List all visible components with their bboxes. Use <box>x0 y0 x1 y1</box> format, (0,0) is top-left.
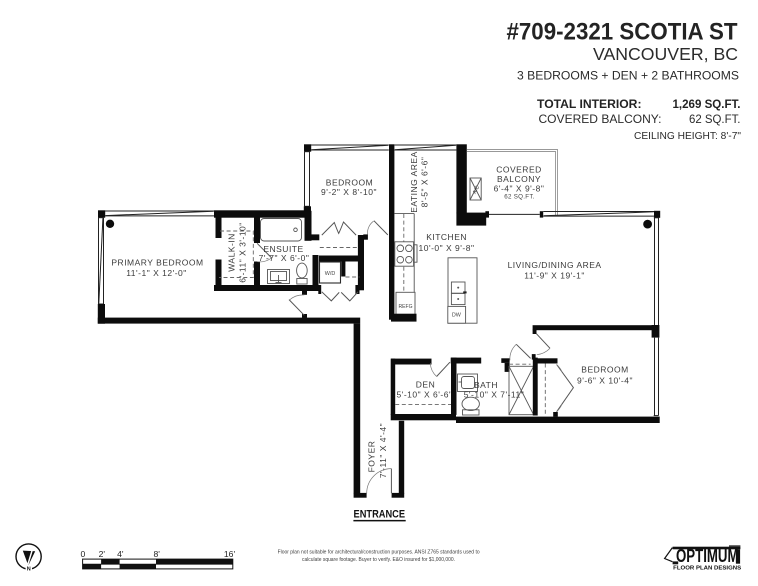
svg-text:TOTAL INTERIOR:: TOTAL INTERIOR: <box>537 97 642 111</box>
svg-text:4': 4' <box>117 549 124 559</box>
svg-text:BEDROOM: BEDROOM <box>326 177 373 187</box>
svg-text:COVERED: COVERED <box>496 165 542 175</box>
svg-text:BALCONY: BALCONY <box>497 174 541 184</box>
svg-text:calculate square footage. Buye: calculate square footage. Buyer to verif… <box>302 557 455 563</box>
svg-text:#709-2321 SCOTIA ST: #709-2321 SCOTIA ST <box>507 19 738 46</box>
svg-text:BATH: BATH <box>474 380 498 390</box>
svg-text:FLOOR PLAN DESIGNS: FLOOR PLAN DESIGNS <box>673 565 742 571</box>
svg-text:ENTRANCE: ENTRANCE <box>354 509 406 521</box>
svg-text:N: N <box>27 567 31 573</box>
svg-text:3 BEDROOMS + DEN + 2 BATHROOMS: 3 BEDROOMS + DEN + 2 BATHROOMS <box>517 69 739 83</box>
svg-text:11'-9" X 19'-1": 11'-9" X 19'-1" <box>524 271 585 281</box>
svg-text:62 SQ.FT.: 62 SQ.FT. <box>504 193 535 200</box>
svg-text:9'-2" X 8'-10": 9'-2" X 8'-10" <box>321 187 377 197</box>
svg-text:LIVING/DINING AREA: LIVING/DINING AREA <box>508 260 602 270</box>
svg-text:10'-0" X 9'-8": 10'-0" X 9'-8" <box>419 243 475 253</box>
svg-text:8': 8' <box>153 549 160 559</box>
svg-text:6'-4" X 9'-8": 6'-4" X 9'-8" <box>494 184 545 194</box>
svg-text:16': 16' <box>224 549 236 559</box>
svg-text:7'-7" X 6'-0": 7'-7" X 6'-0" <box>259 253 310 263</box>
svg-text:BEDROOM: BEDROOM <box>581 365 628 375</box>
svg-text:CEILING HEIGHT: 8'-7": CEILING HEIGHT: 8'-7" <box>634 131 741 142</box>
svg-text:COVERED BALCONY:: COVERED BALCONY: <box>539 112 662 126</box>
svg-text:FOYER: FOYER <box>366 441 376 473</box>
svg-text:KITCHEN: KITCHEN <box>426 232 467 242</box>
svg-text:OPTIMUM: OPTIMUM <box>676 545 739 566</box>
svg-text:6'-11" X 3'-10": 6'-11" X 3'-10" <box>237 222 247 283</box>
svg-text:WALK-IN: WALK-IN <box>227 233 237 272</box>
svg-text:5'-10" X 6'-6": 5'-10" X 6'-6" <box>397 390 453 400</box>
svg-text:8'-5" X 6'-6": 8'-5" X 6'-6" <box>419 157 429 208</box>
svg-text:7'-11" X 4'-4": 7'-11" X 4'-4" <box>378 423 388 478</box>
svg-text:PRIMARY BEDROOM: PRIMARY BEDROOM <box>111 258 203 268</box>
svg-text:REFG: REFG <box>399 304 413 310</box>
svg-text:VANCOUVER, BC: VANCOUVER, BC <box>593 44 738 64</box>
svg-text:9'-6" X 10'-4": 9'-6" X 10'-4" <box>577 375 633 385</box>
svg-text:1,269 SQ.FT.: 1,269 SQ.FT. <box>673 97 741 111</box>
svg-text:DEN: DEN <box>416 379 435 389</box>
svg-text:DW: DW <box>452 312 462 318</box>
svg-text:0: 0 <box>81 549 86 559</box>
svg-text:EATING AREA: EATING AREA <box>409 151 419 213</box>
svg-text:5'-10" X 7'-11": 5'-10" X 7'-11" <box>464 390 525 400</box>
svg-text:62 SQ.FT.: 62 SQ.FT. <box>689 112 741 126</box>
svg-text:2': 2' <box>99 549 106 559</box>
svg-text:Floor plan not suitable for ar: Floor plan not suitable for architectura… <box>278 549 480 555</box>
svg-text:11'-1" X 12'-0": 11'-1" X 12'-0" <box>126 268 187 278</box>
svg-text:W/D: W/D <box>325 271 336 277</box>
